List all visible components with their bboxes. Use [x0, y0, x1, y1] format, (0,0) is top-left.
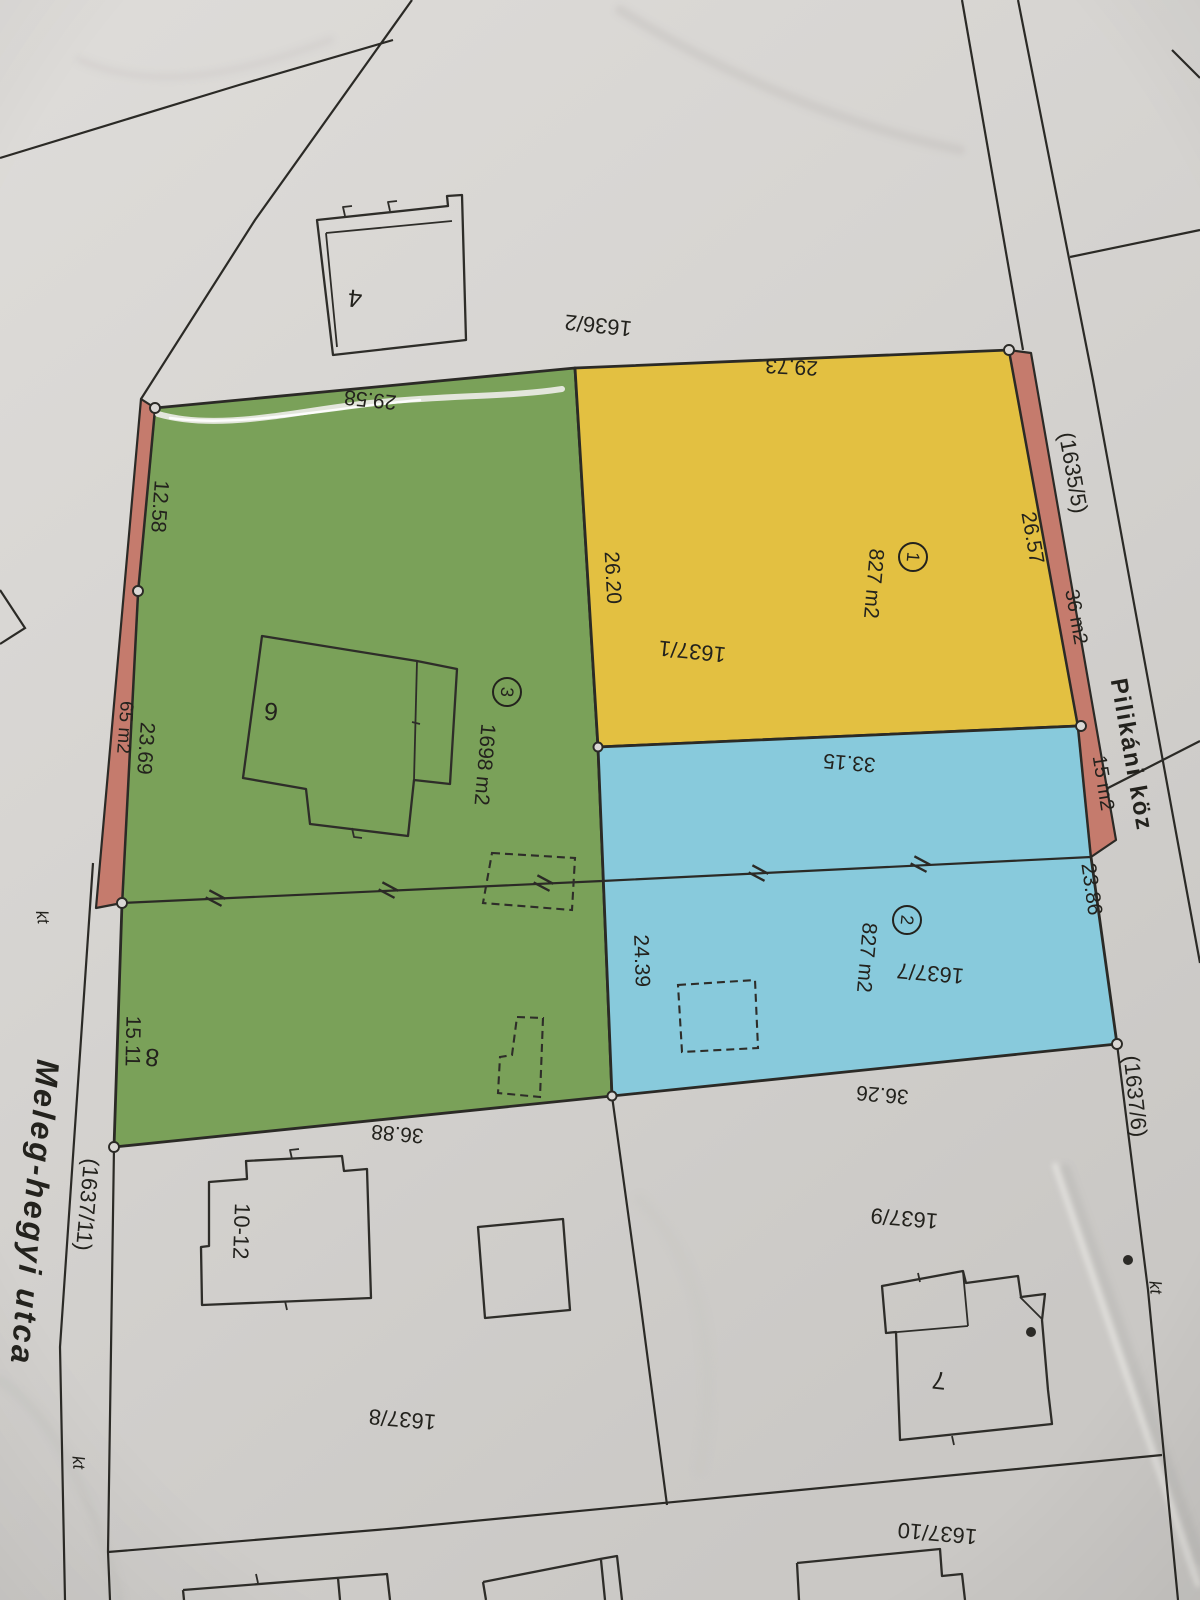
photo-vignette — [0, 0, 1200, 1600]
cadastral-map-svg: 1 2 3 1636/2 (1635/5) (1637/6) 1637/9 16… — [0, 0, 1200, 1600]
cadastral-map-photo: 1 2 3 1636/2 (1635/5) (1637/6) 1637/9 16… — [0, 0, 1200, 1600]
